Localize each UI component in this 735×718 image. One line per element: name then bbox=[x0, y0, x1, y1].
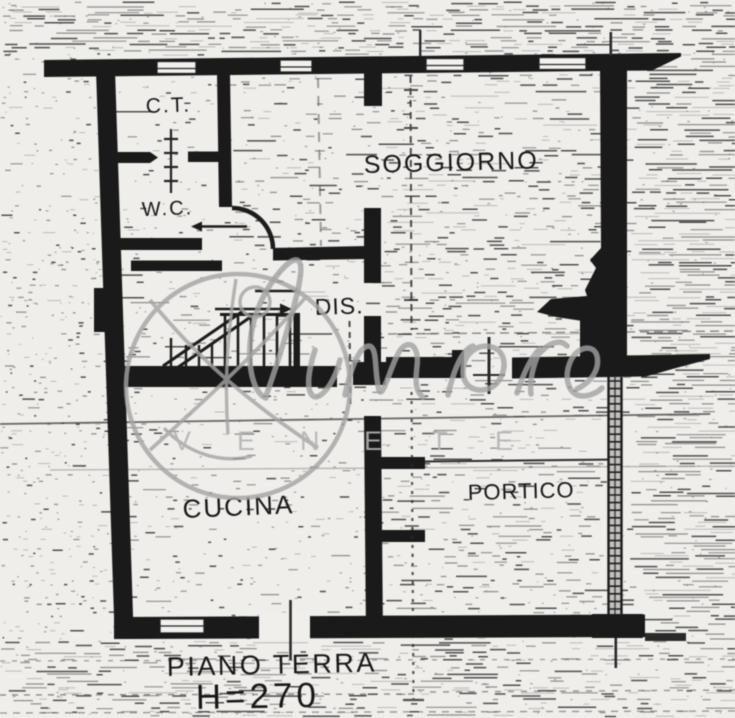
svg-text:E: E bbox=[495, 426, 513, 456]
svg-text:N: N bbox=[300, 426, 320, 456]
svg-text:T: T bbox=[431, 426, 448, 456]
svg-text:PORTICO: PORTICO bbox=[467, 477, 574, 505]
svg-text:CUCINA: CUCINA bbox=[182, 489, 295, 524]
svg-text:V: V bbox=[173, 426, 191, 456]
svg-text:W.C.: W.C. bbox=[141, 197, 193, 221]
svg-text:E: E bbox=[237, 426, 255, 456]
svg-text:SOGGIORNO: SOGGIORNO bbox=[363, 146, 539, 179]
svg-text:E: E bbox=[364, 426, 382, 456]
svg-text:H=270: H=270 bbox=[195, 676, 320, 717]
svg-text:DIS.: DIS. bbox=[314, 292, 364, 320]
svg-text:C.T.: C.T. bbox=[145, 93, 191, 118]
